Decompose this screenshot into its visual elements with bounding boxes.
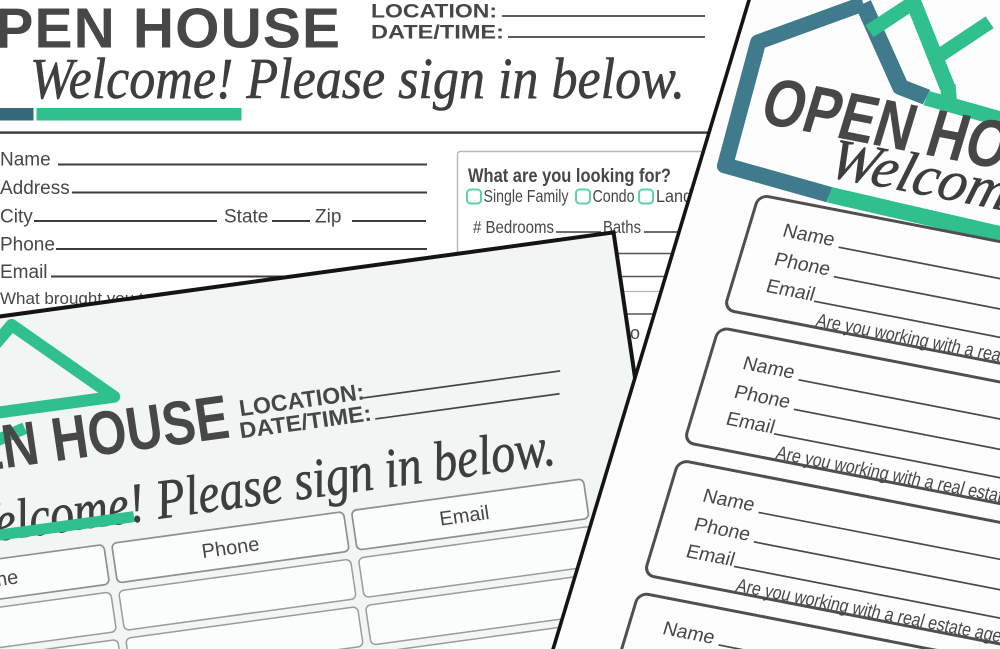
svg-text:Address: Address	[0, 178, 70, 199]
svg-text:DATE/TIME:: DATE/TIME:	[371, 22, 504, 44]
svg-text:Single Family: Single Family	[484, 186, 569, 206]
svg-text:Welcome! Please sign in below.: Welcome! Please sign in below.	[30, 46, 685, 111]
svg-text:What are you looking for?: What are you looking for?	[468, 165, 671, 187]
svg-text:Zip: Zip	[315, 207, 341, 228]
svg-text:Phone: Phone	[0, 235, 55, 256]
svg-text:Name: Name	[0, 150, 51, 171]
svg-text:LOCATION:: LOCATION:	[371, 1, 497, 23]
svg-text:Condo: Condo	[593, 186, 635, 206]
svg-text:# Bedrooms: # Bedrooms	[473, 217, 554, 237]
svg-text:City: City	[0, 207, 33, 228]
svg-text:State: State	[224, 207, 268, 228]
svg-text:Email: Email	[0, 262, 48, 283]
